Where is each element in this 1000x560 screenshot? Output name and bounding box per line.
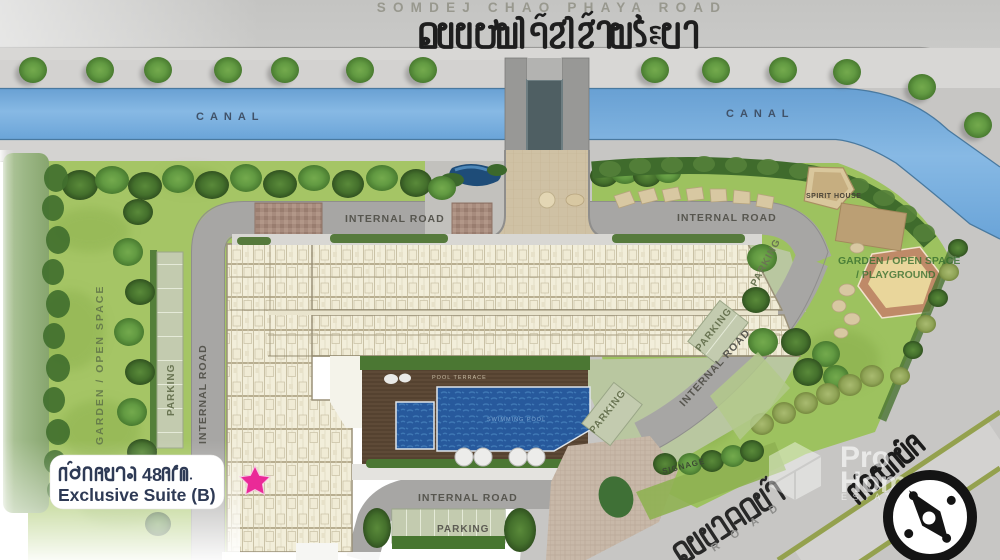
svg-text:PARKING: PARKING [166, 364, 177, 416]
svg-text:GARDEN / OPEN SPACE: GARDEN / OPEN SPACE [94, 285, 106, 445]
svg-text:CANAL: CANAL [196, 111, 265, 123]
svg-text:48: 48 [142, 465, 162, 485]
svg-text:INTERNAL ROAD: INTERNAL ROAD [197, 344, 209, 444]
svg-text:INTERNAL ROAD: INTERNAL ROAD [345, 213, 445, 225]
svg-text:SOMDEJ CHAO PHAYA ROAD: SOMDEJ CHAO PHAYA ROAD [377, 0, 727, 15]
svg-text:INTERNAL ROAD: INTERNAL ROAD [677, 212, 777, 224]
svg-text:SPIRIT HOUSE: SPIRIT HOUSE [806, 193, 861, 200]
svg-text:POOL TERRACE: POOL TERRACE [432, 375, 487, 381]
svg-text:GARDEN / OPEN SPACE: GARDEN / OPEN SPACE [838, 255, 960, 267]
svg-text:INTERNAL ROAD: INTERNAL ROAD [418, 492, 518, 504]
svg-text:PARKING: PARKING [437, 524, 489, 535]
svg-text:CANAL: CANAL [726, 108, 795, 120]
svg-text:/ PLAYGROUND: / PLAYGROUND [856, 269, 936, 281]
svg-text:Exclusive Suite (B): Exclusive Suite (B) [58, 485, 216, 505]
svg-text:SWIMMING POOL: SWIMMING POOL [487, 417, 546, 423]
